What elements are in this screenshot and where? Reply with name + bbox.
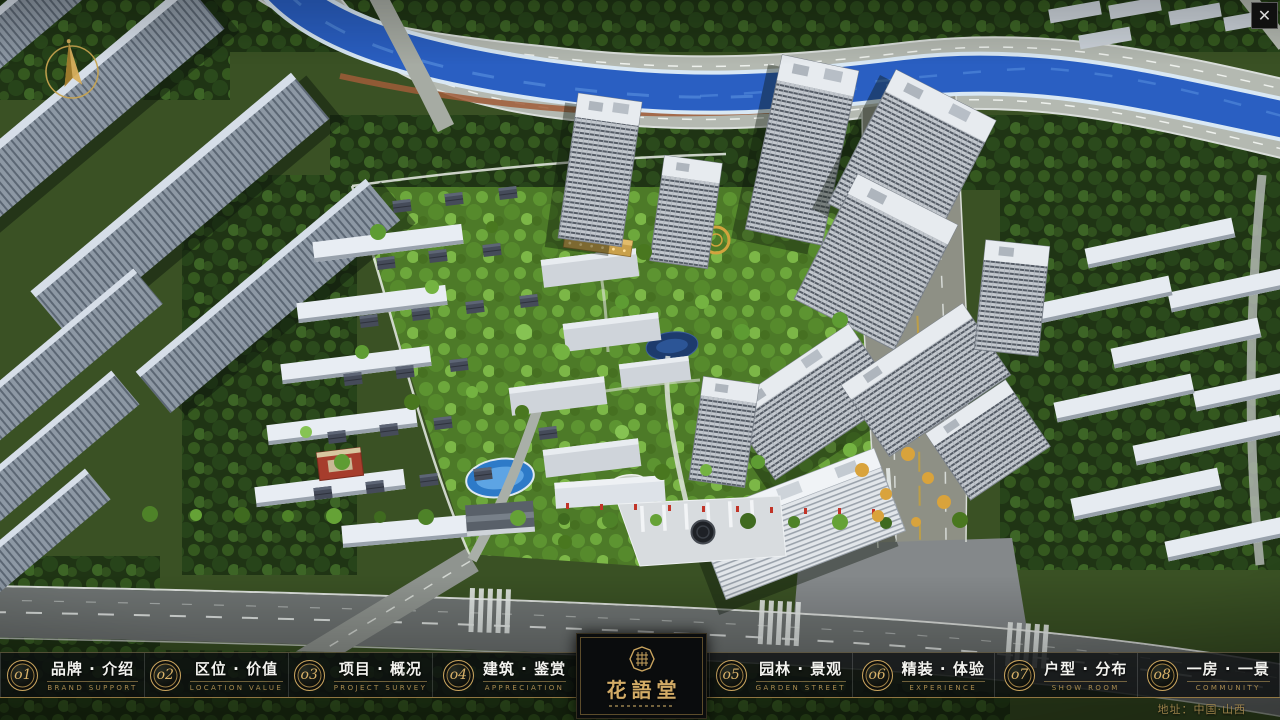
menu-label-zh: 建筑 · 鉴赏 [483,658,566,679]
menu-number-badge: o7 [1004,660,1035,691]
presentation-stage: ✕ o1 品牌 · 介绍 BRAND SUPPORT o2 区位 · 价值 LO… [0,0,1280,720]
menu-item-room-views[interactable]: o8 一房 · 一景 COMMUNITY [1137,653,1280,697]
menu-group-right: o5 园林 · 景观 GARDEN STREET o6 精装 · 体验 EXPE… [709,653,1280,697]
menu-number-badge: o4 [443,660,474,691]
menu-item-brand-intro[interactable]: o1 品牌 · 介绍 BRAND SUPPORT [1,653,145,697]
menu-label-en: EXPERIENCE [902,681,985,692]
menu-number-badge: o6 [862,660,893,691]
menu-number-badge: o8 [1147,660,1178,691]
menu-label-en: SHOW ROOM [1044,681,1127,692]
menu-label-en: LOCATION VALUE [190,681,283,692]
menu-number-badge: o5 [716,660,747,691]
logo-name: 花語堂 [602,674,682,703]
menu-item-location-value[interactable]: o2 区位 · 价值 LOCATION VALUE [145,653,289,697]
menu-label-en: APPRECIATION [483,681,566,692]
menu-label-zh: 精装 · 体验 [902,658,985,679]
menu-item-garden-landscape[interactable]: o5 园林 · 景观 GARDEN STREET [709,653,852,697]
close-icon: ✕ [1258,6,1271,25]
menu-group-left: o1 品牌 · 介绍 BRAND SUPPORT o2 区位 · 价值 LOCA… [0,653,577,697]
menu-label-zh: 项目 · 概况 [339,658,422,679]
menu-label-en: PROJECT SURVEY [334,681,428,692]
menu-number-badge: o1 [7,660,38,691]
project-address: 地址：中国·山西 [1158,701,1247,717]
logo-frame: 花語堂 [580,637,703,715]
menu-label-en: BRAND SUPPORT [47,681,137,692]
menu-label-zh: 品牌 · 介绍 [51,658,134,679]
menu-label-en: COMMUNITY [1187,681,1270,692]
menu-number-badge: o2 [150,660,181,691]
seal-icon [629,646,655,672]
menu-item-interior-experience[interactable]: o6 精装 · 体验 EXPERIENCE [852,653,995,697]
project-logo[interactable]: 花語堂 [576,633,707,719]
menu-number-badge: o3 [294,660,325,691]
menu-item-architecture[interactable]: o4 建筑 · 鉴赏 APPRECIATION [433,653,577,697]
logo-tagline [609,705,675,707]
menu-label-zh: 园林 · 景观 [759,658,842,679]
menu-item-floorplans[interactable]: o7 户型 · 分布 SHOW ROOM [994,653,1137,697]
menu-label-en: GARDEN STREET [756,681,846,692]
close-button[interactable]: ✕ [1251,2,1278,29]
menu-item-project-survey[interactable]: o3 项目 · 概况 PROJECT SURVEY [289,653,433,697]
menu-label-zh: 区位 · 价值 [195,658,278,679]
menu-label-zh: 户型 · 分布 [1044,658,1127,679]
menu-label-zh: 一房 · 一景 [1187,658,1270,679]
masterplan-viewport[interactable] [0,0,1280,720]
